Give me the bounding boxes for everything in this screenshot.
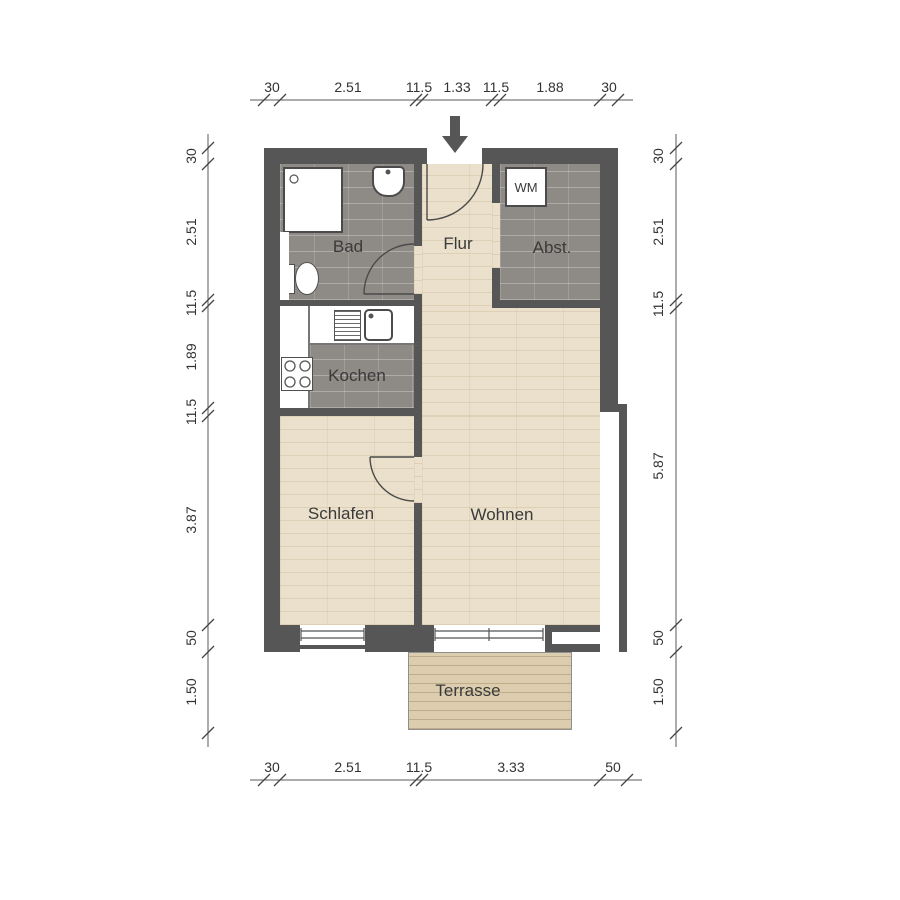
dim-label: 50	[650, 630, 666, 646]
dim-label: 30	[183, 148, 199, 164]
room-label-kochen: Kochen	[328, 366, 386, 386]
bathroom-door-threshold	[414, 246, 422, 294]
bedroom-window-sill	[300, 645, 365, 649]
kitchen-sink-icon	[364, 309, 393, 341]
dim-label: 30	[601, 79, 617, 95]
dim-label: 1.89	[183, 343, 199, 370]
shower-icon	[283, 167, 343, 233]
wall-right-outer	[619, 412, 627, 652]
dim-label: 30	[264, 79, 280, 95]
dim-label: 50	[183, 630, 199, 646]
dim-label: 3.33	[497, 759, 524, 775]
washing-machine-label: WM	[514, 180, 537, 195]
dim-label: 11.5	[406, 759, 432, 775]
wall-bath-kitchen	[264, 300, 422, 306]
dim-label: 50	[605, 759, 621, 775]
drainboard-icon	[334, 310, 361, 341]
room-label-bad: Bad	[333, 237, 363, 257]
floor-plan: WM Bad Flur Abst. Kochen Schlafen Wohnen…	[0, 0, 900, 900]
wall-kitchen-bedroom	[264, 408, 422, 416]
bathroom-sink-icon	[372, 166, 405, 197]
dim-label: 1.50	[650, 678, 666, 705]
washing-machine-icon: WM	[505, 167, 547, 207]
room-label-abst: Abst.	[533, 238, 572, 258]
dim-label: 2.51	[334, 759, 361, 775]
dim-label: 1.50	[183, 678, 199, 705]
terrace-door-opening	[434, 625, 545, 652]
dim-label: 3.87	[183, 506, 199, 533]
dim-label: 2.51	[650, 218, 666, 245]
dim-label: 11.5	[406, 79, 432, 95]
wall-bedroom-living	[414, 503, 422, 625]
dim-label: 1.88	[536, 79, 563, 95]
wall-right-jog	[600, 404, 627, 412]
wall-hall-storage-upper	[492, 164, 500, 203]
dim-label: 30	[650, 148, 666, 164]
wall-bath-hall-upper	[414, 164, 422, 246]
toilet-bowl-icon	[295, 262, 319, 295]
dim-label: 11.5	[483, 79, 509, 95]
wall-kitchen-hall	[414, 294, 422, 457]
living-upper-floor	[422, 306, 600, 416]
storage-door-threshold	[492, 203, 500, 268]
bathroom-wall-niche	[279, 232, 289, 302]
dim-label: 11.5	[183, 399, 199, 425]
room-label-terrasse: Terrasse	[435, 681, 500, 701]
wall-storage-bottom	[492, 300, 600, 308]
dim-label: 30	[264, 759, 280, 775]
room-label-wohnen: Wohnen	[470, 505, 533, 525]
dim-label: 1.33	[443, 79, 470, 95]
dim-label: 11.5	[183, 290, 199, 316]
stove-icon	[281, 357, 313, 391]
dim-label: 5.87	[650, 452, 666, 479]
bedroom-door-threshold	[414, 457, 422, 503]
room-label-flur: Flur	[443, 234, 472, 254]
wall-right-upper	[600, 164, 618, 404]
room-label-schlafen: Schlafen	[308, 504, 374, 524]
living-side-glazing	[600, 412, 619, 644]
entrance-door-opening	[427, 148, 482, 164]
dim-label: 2.51	[183, 218, 199, 245]
dim-label: 11.5	[650, 291, 666, 317]
dim-label: 2.51	[334, 79, 361, 95]
